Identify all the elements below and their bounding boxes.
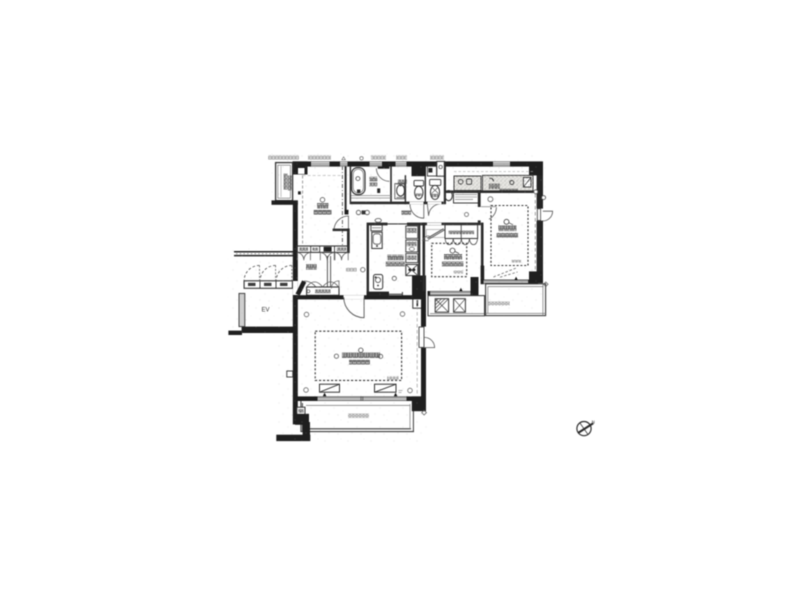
- svg-text:N: N: [592, 420, 595, 425]
